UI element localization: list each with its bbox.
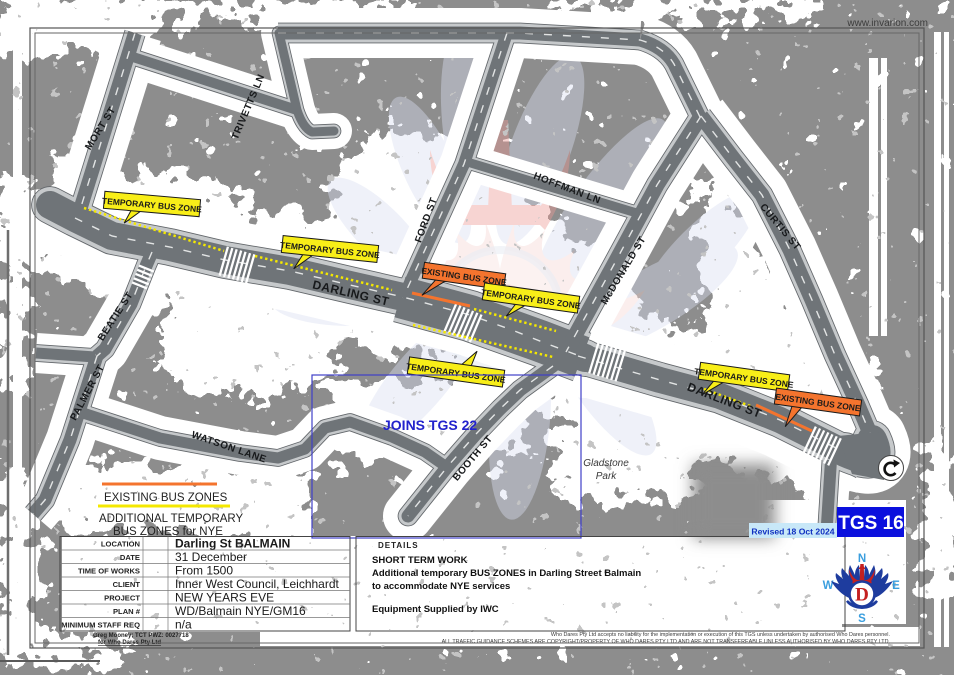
svg-text:Greg Mooney: TCT PWZ: 0027718: Greg Mooney: TCT PWZ: 0027718 [93, 633, 189, 639]
svg-text:Park: Park [596, 471, 618, 482]
svg-text:Darling St BALMAIN: Darling St BALMAIN [175, 537, 290, 551]
svg-text:EXISTING BUS ZONES: EXISTING BUS ZONES [104, 492, 228, 504]
svg-text:n/a: n/a [175, 618, 192, 632]
svg-text:N: N [858, 553, 866, 565]
svg-text:S: S [858, 613, 866, 625]
svg-text:CLIENT: CLIENT [113, 580, 141, 589]
svg-text:SHORT TERM WORK: SHORT TERM WORK [372, 555, 468, 566]
svg-text:TGS 16: TGS 16 [838, 513, 903, 534]
svg-text:JOINS TGS 22: JOINS TGS 22 [383, 417, 477, 433]
svg-text:Additional temporary BUS ZONES: Additional temporary BUS ZONES in Darlin… [372, 568, 641, 579]
svg-text:TIME OF WORKS: TIME OF WORKS [78, 567, 140, 576]
svg-text:ADDITIONAL TEMPORARY: ADDITIONAL TEMPORARY [99, 513, 244, 525]
svg-text:Who Dares Pty Ltd accepts no l: Who Dares Pty Ltd accepts no liability f… [551, 632, 890, 638]
svg-text:MINIMUM STAFF REQ: MINIMUM STAFF REQ [61, 621, 140, 630]
svg-text:Equipment Supplied by IWC: Equipment Supplied by IWC [372, 604, 499, 615]
svg-text:From 1500: From 1500 [175, 564, 233, 578]
svg-text:Inner West Council, Leichhardt: Inner West Council, Leichhardt [175, 577, 340, 591]
svg-text:DATE: DATE [120, 553, 140, 562]
svg-text:LOCATION: LOCATION [101, 540, 140, 549]
svg-text:NEW YEARS EVE: NEW YEARS EVE [175, 591, 274, 605]
svg-text:ALL TRAFFIC GUIDANCE SCHEMES A: ALL TRAFFIC GUIDANCE SCHEMES ARE COPYRIG… [442, 639, 890, 645]
svg-text:DETAILS: DETAILS [378, 541, 419, 550]
svg-text:PROJECT: PROJECT [104, 594, 140, 603]
svg-text:D: D [855, 585, 869, 606]
svg-text:Revised 18 Oct 2024: Revised 18 Oct 2024 [751, 527, 834, 537]
svg-text:WD/Balmain NYE/GM16: WD/Balmain NYE/GM16 [175, 604, 306, 618]
svg-text:to accommodate NYE services: to accommodate NYE services [372, 581, 510, 592]
svg-text:www.invarion.com: www.invarion.com [846, 18, 928, 29]
svg-text:E: E [892, 580, 900, 592]
svg-text:Gladstone: Gladstone [583, 458, 629, 469]
svg-text:31 December: 31 December [175, 550, 247, 564]
svg-text:PLAN #: PLAN # [113, 607, 141, 616]
